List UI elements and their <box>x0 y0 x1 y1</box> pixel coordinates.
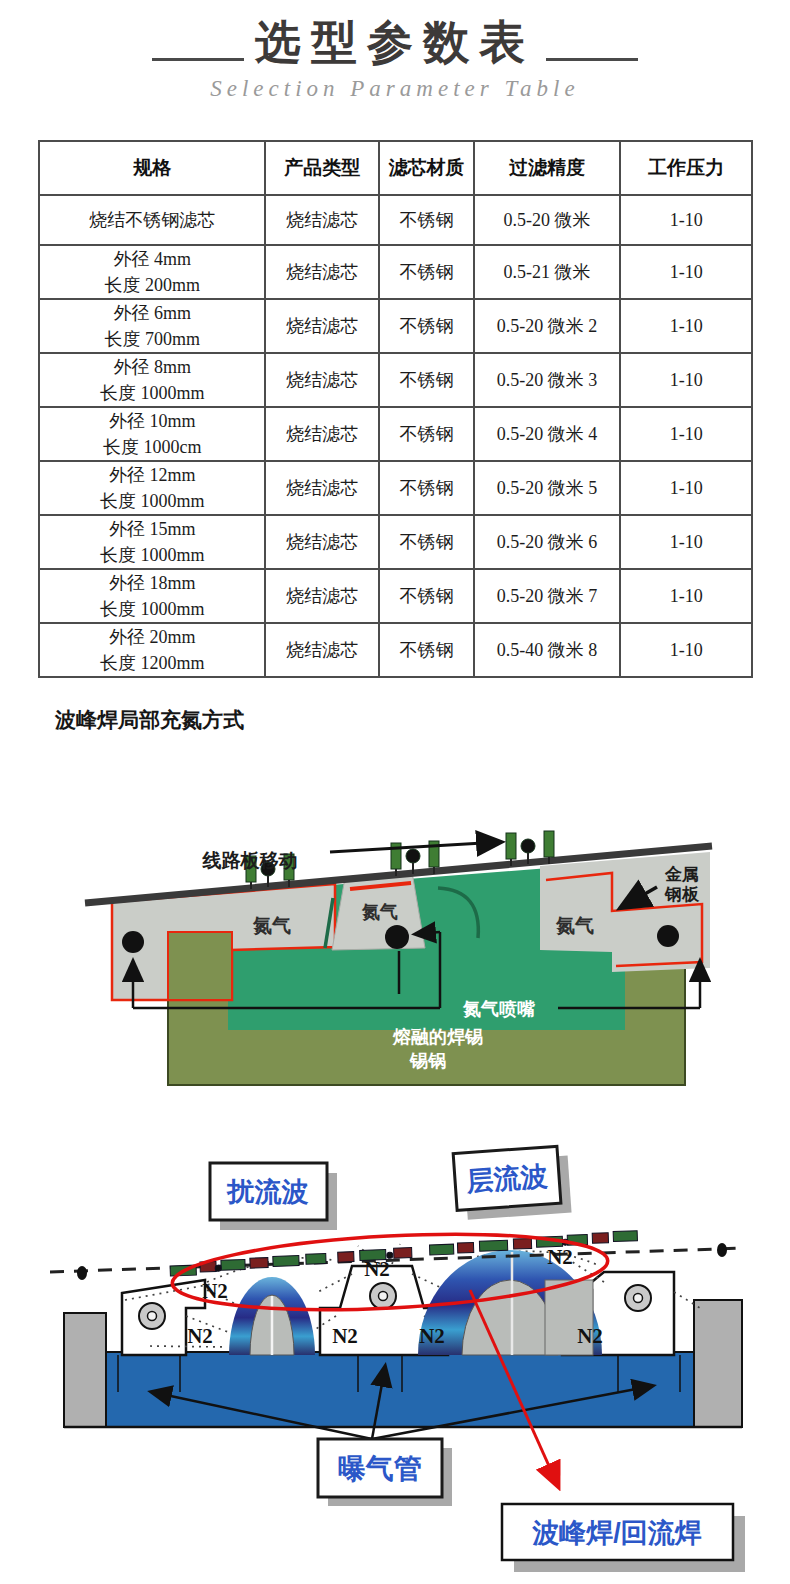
laminar-label-box: 层流波 <box>453 1146 571 1221</box>
nitrogen-label-left: 氮气 <box>252 915 291 936</box>
cell-pressure: 1-10 <box>620 299 752 353</box>
nitrogen-label-right: 氮气 <box>555 915 594 936</box>
cell-type: 烧结滤芯 <box>265 195 379 245</box>
cell-spec: 烧结不锈钢滤芯 <box>39 195 265 245</box>
cell-type: 烧结滤芯 <box>265 461 379 515</box>
cell-material: 不锈钢 <box>379 299 474 353</box>
n2-label: N2 <box>332 1324 358 1348</box>
cell-type: 烧结滤芯 <box>265 299 379 353</box>
cell-pressure: 1-10 <box>620 515 752 569</box>
cell-spec: 外径 6mm长度 700mm <box>39 299 265 353</box>
cell-precision: 0.5-20 微米 <box>474 195 621 245</box>
col-header-material: 滤芯材质 <box>379 141 474 195</box>
cell-pressure: 1-10 <box>620 569 752 623</box>
table-row: 烧结不锈钢滤芯 烧结滤芯 不锈钢 0.5-20 微米 1-10 <box>39 195 752 245</box>
table-row: 外径 18mm长度 1000mm 烧结滤芯 不锈钢 0.5-20 微米 7 1-… <box>39 569 752 623</box>
conveyor-end-left <box>77 1266 87 1280</box>
col-header-pressure: 工作压力 <box>620 141 752 195</box>
aeration-label-box: 曝气管 <box>318 1439 452 1506</box>
title-dash-left <box>152 58 244 61</box>
cell-spec: 外径 12mm长度 1000mm <box>39 461 265 515</box>
cell-type: 烧结滤芯 <box>265 245 379 299</box>
cell-material: 不锈钢 <box>379 407 474 461</box>
nitrogen-label-center: 氮气 <box>361 902 398 922</box>
cell-material: 不锈钢 <box>379 245 474 299</box>
cell-pressure: 1-10 <box>620 461 752 515</box>
bath-post-left <box>64 1313 106 1427</box>
svg-text:层流波: 层流波 <box>465 1161 549 1197</box>
cell-pressure: 1-10 <box>620 623 752 677</box>
cell-precision: 0.5-21 微米 <box>474 245 621 299</box>
page-subtitle: Selection Parameter Table <box>0 76 790 102</box>
cell-material: 不锈钢 <box>379 569 474 623</box>
cell-type: 烧结滤芯 <box>265 623 379 677</box>
col-header-spec: 规格 <box>39 141 265 195</box>
table-row: 外径 10mm长度 1000cm 烧结滤芯 不锈钢 0.5-20 微米 4 1-… <box>39 407 752 461</box>
cell-precision: 0.5-20 微米 6 <box>474 515 621 569</box>
col-header-type: 产品类型 <box>265 141 379 195</box>
cell-precision: 0.5-20 微米 3 <box>474 353 621 407</box>
cell-material: 不锈钢 <box>379 515 474 569</box>
cell-type: 烧结滤芯 <box>265 515 379 569</box>
cell-precision: 0.5-20 微米 5 <box>474 461 621 515</box>
wave-types-diagram: N2 N2 N2 N2 N2 N2 N2 扰流波 层流波 曝气管 <box>0 1140 790 1584</box>
page-title: 选型参数表 <box>255 12 535 74</box>
cell-material: 不锈钢 <box>379 461 474 515</box>
cell-precision: 0.5-20 微米 7 <box>474 569 621 623</box>
cell-pressure: 1-10 <box>620 353 752 407</box>
table-row: 外径 8mm长度 1000mm 烧结滤芯 不锈钢 0.5-20 微米 3 1-1… <box>39 353 752 407</box>
nozzle-dot-left <box>122 931 144 953</box>
tin-pot-label: 锡锅 <box>409 1051 446 1071</box>
page: 选型参数表 Selection Parameter Table 规格 产品类型 … <box>0 0 790 1584</box>
cell-pressure: 1-10 <box>620 245 752 299</box>
nozzle-dot-right <box>657 925 679 947</box>
table-row: 外径 6mm长度 700mm 烧结滤芯 不锈钢 0.5-20 微米 2 1-10 <box>39 299 752 353</box>
conveyor-end-right <box>717 1243 727 1257</box>
cell-precision: 0.5-20 微米 2 <box>474 299 621 353</box>
n2-label: N2 <box>187 1324 213 1348</box>
cell-spec: 外径 10mm长度 1000cm <box>39 407 265 461</box>
cell-material: 不锈钢 <box>379 623 474 677</box>
cell-material: 不锈钢 <box>379 195 474 245</box>
turbulent-label-box: 扰流波 <box>210 1163 337 1230</box>
cell-spec: 外径 4mm长度 200mm <box>39 245 265 299</box>
turbulent-wave <box>229 1277 315 1355</box>
board-move-label: 线路板移动 <box>202 850 298 871</box>
nozzle-dot-center <box>385 925 409 949</box>
cell-spec: 外径 8mm长度 1000mm <box>39 353 265 407</box>
table-row: 外径 20mm长度 1200mm 烧结滤芯 不锈钢 0.5-40 微米 8 1-… <box>39 623 752 677</box>
wave-reflow-label-box: 波峰焊/回流焊 <box>502 1504 745 1572</box>
cell-precision: 0.5-20 微米 4 <box>474 407 621 461</box>
nozzle-label: 氮气喷嘴 <box>462 999 536 1019</box>
bath-post-right <box>694 1300 742 1427</box>
cell-type: 烧结滤芯 <box>265 353 379 407</box>
cell-type: 烧结滤芯 <box>265 569 379 623</box>
title-block: 选型参数表 <box>0 12 790 74</box>
cell-type: 烧结滤芯 <box>265 407 379 461</box>
col-header-precision: 过滤精度 <box>474 141 621 195</box>
cell-material: 不锈钢 <box>379 353 474 407</box>
cell-pressure: 1-10 <box>620 195 752 245</box>
title-dash-right <box>546 58 638 61</box>
svg-text:扰流波: 扰流波 <box>226 1177 309 1207</box>
cell-spec: 外径 18mm长度 1000mm <box>39 569 265 623</box>
n2-label: N2 <box>547 1245 573 1269</box>
parameter-table: 规格 产品类型 滤芯材质 过滤精度 工作压力 烧结不锈钢滤芯 烧结滤芯 不锈钢 … <box>38 140 753 678</box>
table-header-row: 规格 产品类型 滤芯材质 过滤精度 工作压力 <box>39 141 752 195</box>
n2-label: N2 <box>364 1257 390 1281</box>
svg-text:钢板: 钢板 <box>664 885 700 904</box>
molten-solder-label: 熔融的焊锡 <box>392 1027 483 1047</box>
cell-spec: 外径 20mm长度 1200mm <box>39 623 265 677</box>
table-row: 外径 12mm长度 1000mm 烧结滤芯 不锈钢 0.5-20 微米 5 1-… <box>39 461 752 515</box>
section-heading: 波峰焊局部充氮方式 <box>55 706 244 734</box>
table-row: 外径 15mm长度 1000mm 烧结滤芯 不锈钢 0.5-20 微米 6 1-… <box>39 515 752 569</box>
n2-label: N2 <box>202 1279 228 1303</box>
cell-spec: 外径 15mm长度 1000mm <box>39 515 265 569</box>
cell-precision: 0.5-40 微米 8 <box>474 623 621 677</box>
cell-pressure: 1-10 <box>620 407 752 461</box>
n2-label: N2 <box>577 1324 603 1348</box>
svg-text:金属: 金属 <box>664 865 699 884</box>
svg-text:波峰焊/回流焊: 波峰焊/回流焊 <box>531 1518 702 1548</box>
wave-solder-nitrogen-diagram: 氮气 氮气 氮气 <box>0 770 790 1100</box>
svg-text:曝气管: 曝气管 <box>338 1453 422 1484</box>
table-row: 外径 4mm长度 200mm 烧结滤芯 不锈钢 0.5-21 微米 1-10 <box>39 245 752 299</box>
n2-label: N2 <box>419 1324 445 1348</box>
